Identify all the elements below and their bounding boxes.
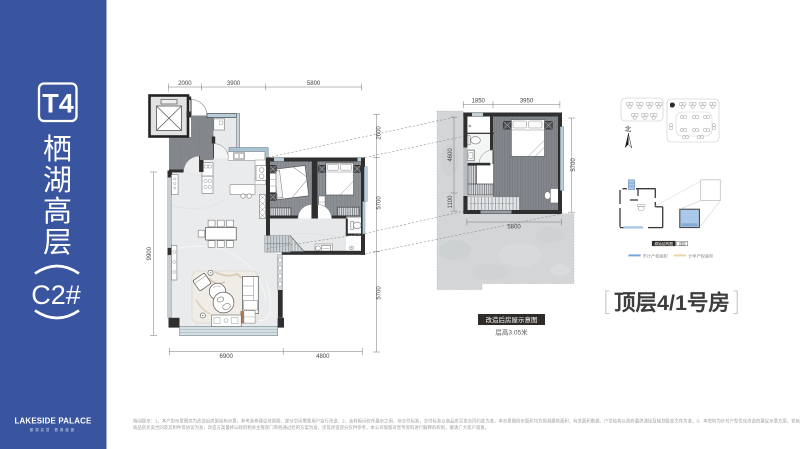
svg-text:2000: 2000 (178, 81, 192, 87)
svg-text:9900: 9900 (147, 246, 153, 260)
svg-text:特别提示：1、本户型示意图仅为改造后房屋结构示意，参考装修建: 特别提示：1、本户型示意图仅为改造后房屋结构示意，参考装修建议效果图，部分空间需… (133, 418, 800, 425)
svg-text:5700: 5700 (377, 286, 383, 300)
svg-text:LAKESIDE PALACE: LAKESIDE PALACE (15, 417, 92, 426)
svg-text:计半产权面积: 计半产权面积 (688, 253, 713, 260)
svg-text:麓湖高层 栖湖组团: 麓湖高层 栖湖组团 (30, 427, 76, 432)
svg-text:顶层: 顶层 (679, 241, 686, 246)
svg-text:不计产权面积: 不计产权面积 (643, 253, 668, 260)
svg-text:3900: 3900 (227, 81, 241, 87)
svg-text:层: 层 (43, 227, 72, 259)
svg-text:商品房买卖合同及其附件等协议为准，改造方案最终以政府相关主管: 商品房买卖合同及其附件等协议为准，改造方案最终以政府相关主管部门审批通过后的方案… (133, 424, 489, 431)
svg-text:栖: 栖 (43, 133, 72, 166)
svg-text:高: 高 (43, 195, 72, 228)
svg-text:4600: 4600 (448, 148, 454, 162)
svg-text:5800: 5800 (507, 225, 521, 231)
svg-text:3950: 3950 (520, 99, 534, 105)
svg-text:改造后房屋示意图: 改造后房屋示意图 (486, 315, 538, 324)
svg-text:1850: 1850 (472, 99, 486, 105)
svg-text:6900: 6900 (220, 354, 234, 360)
svg-text:1100: 1100 (448, 195, 454, 209)
svg-text:层高3.05米: 层高3.05米 (495, 328, 528, 337)
svg-text:T4: T4 (42, 89, 74, 119)
svg-text:湖: 湖 (43, 165, 72, 197)
svg-text:5700: 5700 (377, 196, 383, 210)
svg-text:C2#: C2# (31, 280, 81, 310)
svg-text:5800: 5800 (307, 81, 321, 87)
svg-text:顶层4/1号房: 顶层4/1号房 (614, 290, 730, 315)
svg-text:5700: 5700 (571, 158, 577, 172)
svg-text:4800: 4800 (316, 354, 330, 360)
svg-text:原始结构图: 原始结构图 (654, 241, 673, 246)
svg-text:北: 北 (625, 125, 632, 133)
